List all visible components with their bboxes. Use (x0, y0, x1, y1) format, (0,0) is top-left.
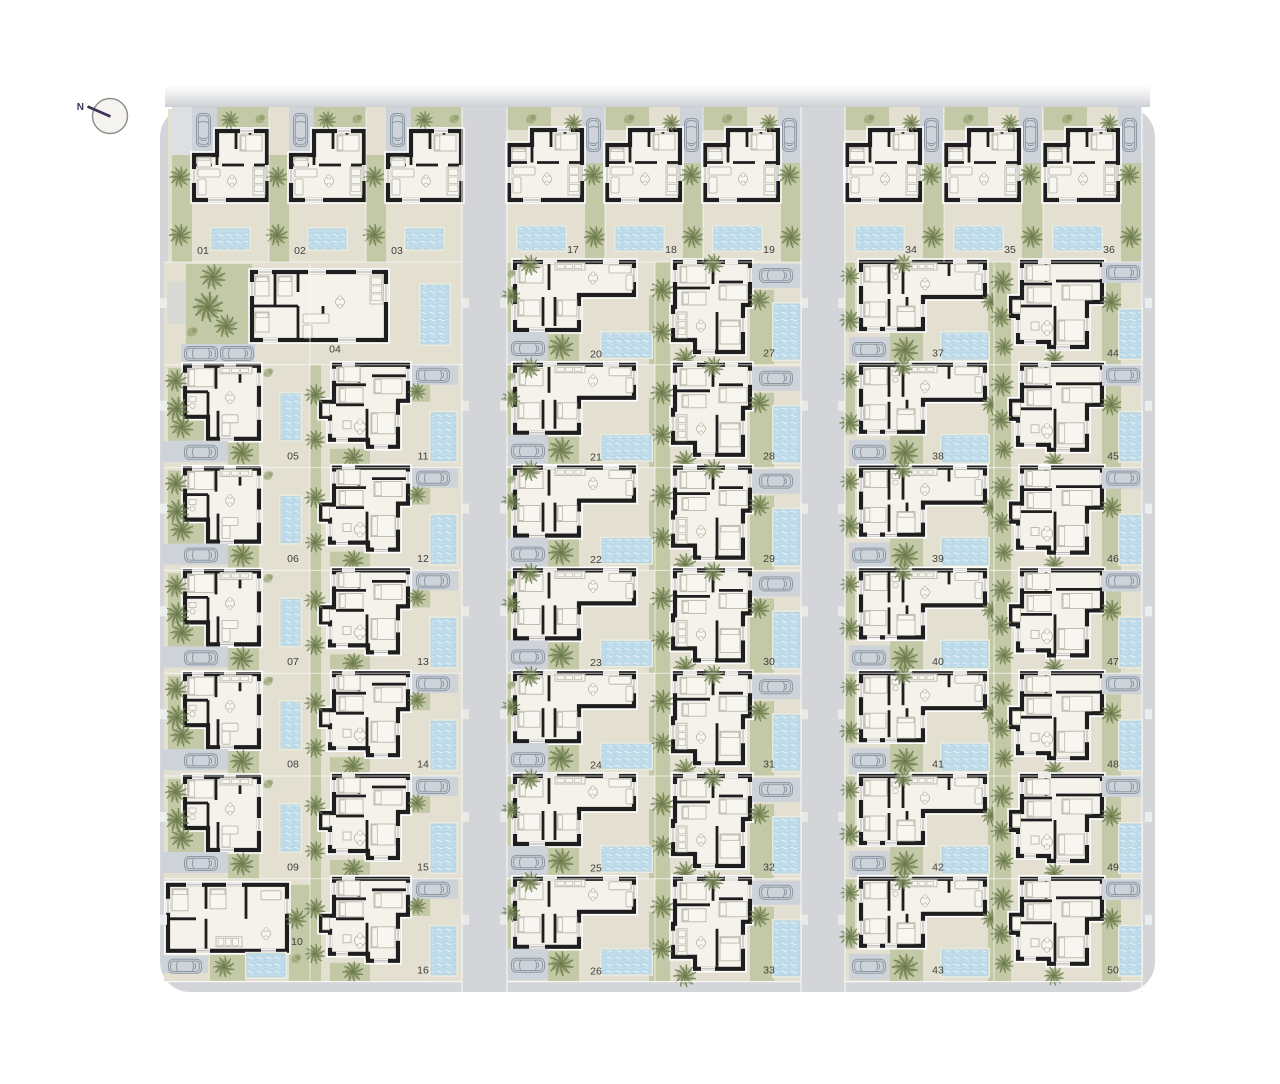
svg-text:09: 09 (287, 862, 299, 874)
svg-text:05: 05 (287, 450, 299, 462)
svg-text:18: 18 (665, 244, 677, 256)
svg-text:36: 36 (1103, 244, 1115, 256)
svg-text:08: 08 (287, 759, 299, 771)
svg-text:42: 42 (932, 862, 944, 874)
svg-text:23: 23 (590, 657, 602, 669)
svg-text:30: 30 (763, 656, 775, 668)
svg-text:28: 28 (763, 450, 775, 462)
svg-text:38: 38 (932, 450, 944, 462)
svg-text:45: 45 (1107, 450, 1119, 462)
svg-text:40: 40 (932, 656, 944, 668)
svg-text:27: 27 (763, 348, 775, 360)
svg-text:14: 14 (417, 759, 429, 771)
svg-text:01: 01 (197, 245, 209, 257)
svg-text:32: 32 (763, 862, 775, 874)
svg-text:06: 06 (287, 553, 299, 565)
svg-text:41: 41 (932, 759, 944, 771)
svg-text:N: N (77, 102, 84, 113)
svg-text:43: 43 (932, 964, 944, 976)
svg-text:07: 07 (287, 656, 299, 668)
svg-text:20: 20 (590, 349, 602, 361)
svg-text:44: 44 (1107, 348, 1119, 360)
svg-text:02: 02 (294, 245, 306, 257)
svg-text:48: 48 (1107, 759, 1119, 771)
svg-text:46: 46 (1107, 553, 1119, 565)
svg-text:10: 10 (291, 936, 303, 948)
svg-text:04: 04 (329, 344, 341, 356)
svg-text:29: 29 (763, 553, 775, 565)
svg-text:11: 11 (418, 450, 429, 462)
svg-text:25: 25 (590, 863, 602, 875)
svg-text:16: 16 (417, 964, 429, 976)
svg-text:26: 26 (590, 965, 602, 977)
svg-text:22: 22 (590, 554, 602, 566)
svg-text:47: 47 (1107, 656, 1119, 668)
svg-text:12: 12 (417, 553, 429, 565)
svg-text:35: 35 (1004, 244, 1016, 256)
svg-text:03: 03 (391, 245, 403, 257)
svg-text:34: 34 (905, 244, 917, 256)
svg-text:33: 33 (763, 964, 775, 976)
svg-text:13: 13 (417, 656, 429, 668)
svg-text:31: 31 (763, 759, 775, 771)
svg-text:17: 17 (567, 244, 579, 256)
svg-text:15: 15 (417, 862, 429, 874)
svg-text:24: 24 (590, 760, 602, 772)
svg-text:19: 19 (763, 244, 775, 256)
svg-text:39: 39 (932, 553, 944, 565)
svg-text:49: 49 (1107, 862, 1119, 874)
svg-text:37: 37 (932, 348, 944, 360)
svg-text:50: 50 (1107, 964, 1119, 976)
svg-text:21: 21 (590, 451, 602, 463)
